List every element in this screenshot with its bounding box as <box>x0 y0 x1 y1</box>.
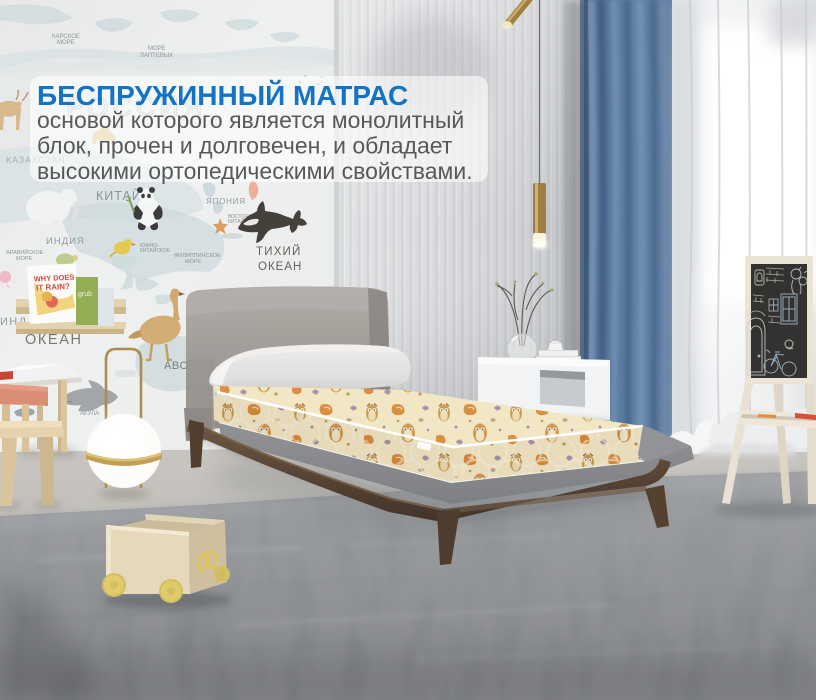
svg-text:АВС: АВС <box>164 360 188 372</box>
svg-text:IT RAIN?: IT RAIN? <box>36 282 70 293</box>
svg-text:АРАВИЙСКОЕ: АРАВИЙСКОЕ <box>6 248 44 256</box>
svg-text:АКУЛА: АКУЛА <box>80 411 99 417</box>
svg-text:ОКЕАН: ОКЕАН <box>25 332 83 348</box>
svg-text:КИТАЙСКОЕ: КИТАЙСКОЕ <box>140 246 171 254</box>
svg-text:МОРЕ: МОРЕ <box>57 40 75 46</box>
svg-text:МОРЕ: МОРЕ <box>185 259 202 265</box>
svg-text:ОКЕАН: ОКЕАН <box>258 261 302 273</box>
svg-text:КИТАЙ: КИТАЙ <box>96 188 142 203</box>
svg-text:высокими ортопедическими свойс: высокими ортопедическими свойствами. <box>37 158 473 184</box>
svg-text:МОРЕ: МОРЕ <box>16 256 33 262</box>
svg-text:ИНДИЯ: ИНДИЯ <box>46 236 85 247</box>
svg-text:МОРЕ: МОРЕ <box>148 46 166 52</box>
svg-text:ЯПОНИЯ: ЯПОНИЯ <box>206 197 246 206</box>
svg-text:ТИХИЙ: ТИХИЙ <box>256 245 302 258</box>
svg-text:ЛАПТЕВЫХ: ЛАПТЕВЫХ <box>140 53 173 59</box>
svg-text:блок, прочен и долговечен, и о: блок, прочен и долговечен, и обладает <box>37 133 453 159</box>
svg-text:grub: grub <box>78 291 92 298</box>
svg-text:основой которого является моно: основой которого является монолитный <box>37 107 464 133</box>
